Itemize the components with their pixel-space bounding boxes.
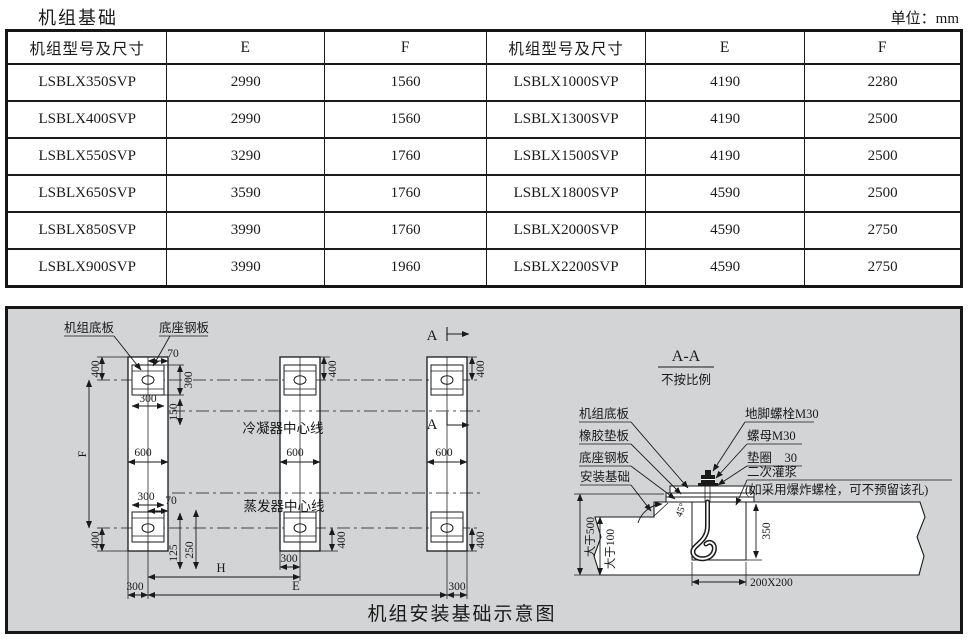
dim-gt500-label: 大于500 — [583, 517, 597, 557]
dim-150-label: 150 — [168, 403, 180, 421]
model-cell: LSBLX1300SVP — [487, 101, 646, 138]
dim-400-label: 400 — [475, 531, 487, 549]
table-row: LSBLX650SVP 3590 1760 LSBLX1800SVP 4590 … — [7, 175, 962, 212]
anchor-bolt-label: 地脚螺栓M30 — [745, 406, 819, 421]
unit-base-plate-label: 机组底板 — [64, 320, 115, 335]
table-row: LSBLX850SVP 3990 1760 LSBLX2000SVP 4590 … — [7, 212, 962, 249]
dim-f-cell: 2500 — [805, 101, 962, 138]
dim-f-cell: 2750 — [805, 212, 962, 249]
dim-pocket-label: 200X200 — [750, 577, 793, 589]
dim-f-cell: 1760 — [325, 138, 487, 175]
dim-e-cell: 4190 — [645, 138, 804, 175]
dim-70-label: 70 — [167, 348, 179, 360]
document-page: 机组基础 单位：mm 机组型号及尺寸 E F 机组型号及尺寸 E F LSBLX… — [0, 0, 971, 642]
dim-H-label: H — [216, 561, 225, 575]
dim-70-label: 70 — [165, 495, 177, 507]
rubber-pad-label: 橡胶垫板 — [579, 428, 630, 443]
model-cell: LSBLX650SVP — [7, 175, 167, 212]
dim-e-cell: 3590 — [167, 175, 325, 212]
dim-300-label: 300 — [126, 581, 144, 593]
base-steel-plate-label: 底座钢板 — [579, 450, 630, 465]
model-cell: LSBLX1800SVP — [487, 175, 646, 212]
col-header-e: E — [645, 31, 804, 65]
model-cell: LSBLX350SVP — [7, 64, 167, 101]
dim-600-label: 600 — [286, 447, 304, 459]
washer-label: 垫圈 30 — [747, 450, 797, 465]
dim-gt100-label: 大于100 — [603, 529, 617, 569]
dim-e-cell: 4590 — [645, 212, 804, 249]
dim-400-label: 400 — [90, 360, 102, 378]
dim-400-label: 400 — [90, 531, 102, 549]
dim-300-label: 300 — [448, 581, 466, 593]
col-header-e: E — [167, 31, 325, 65]
dim-e-cell: 4590 — [645, 249, 804, 287]
dim-300-label: 300 — [137, 491, 155, 503]
dim-e-cell: 4590 — [645, 175, 804, 212]
dim-250-label: 250 — [184, 541, 196, 559]
dim-e-cell: 2990 — [167, 64, 325, 101]
dim-f-cell: 1560 — [325, 64, 487, 101]
grout-label: 二次灌浆 — [747, 464, 798, 479]
table-row: LSBLX350SVP 2990 1560 LSBLX1000SVP 4190 … — [7, 64, 962, 101]
dim-125-label: 125 — [168, 544, 180, 562]
dim-f-cell: 1960 — [325, 249, 487, 287]
dim-e-cell: 2990 — [167, 101, 325, 138]
model-cell: LSBLX1500SVP — [487, 138, 646, 175]
table-row: LSBLX550SVP 3290 1760 LSBLX1500SVP 4190 … — [7, 138, 962, 175]
unit-label: 单位：mm — [891, 7, 959, 28]
dim-f-cell: 2500 — [805, 138, 962, 175]
table-row: LSBLX900SVP 3990 1960 LSBLX2200SVP 4590 … — [7, 249, 962, 287]
col-header-model: 机组型号及尺寸 — [487, 31, 646, 65]
grout-note-label: (如采用爆炸螺栓，可不预留该孔) — [745, 482, 928, 497]
dim-300-label: 300 — [183, 371, 195, 389]
plan-view: 机组底板 底座钢板 冷凝器中心线 蒸发器中心线 400 F 400 — [64, 320, 487, 599]
col-header-f: F — [325, 31, 487, 65]
base-steel-plate-label: 底座钢板 — [159, 320, 210, 335]
diagram-caption: 机组安装基础示意图 — [367, 603, 556, 625]
model-cell: LSBLX2200SVP — [487, 249, 646, 287]
dim-350-label: 350 — [761, 522, 773, 540]
dim-F-label: F — [77, 451, 89, 457]
section-marker-a-bottom: A — [427, 417, 438, 433]
col-header-model: 机组型号及尺寸 — [7, 31, 167, 65]
bolt-stud — [705, 470, 711, 475]
dim-f-cell: 1760 — [325, 212, 487, 249]
dim-400-label: 400 — [475, 360, 487, 378]
dim-600-label: 600 — [435, 447, 453, 459]
dim-e-cell: 3990 — [167, 249, 325, 287]
dim-f-cell: 1560 — [325, 101, 487, 138]
installation-diagram-panel: 机组底板 底座钢板 冷凝器中心线 蒸发器中心线 400 F 400 — [5, 306, 963, 634]
dim-e-cell: 3990 — [167, 212, 325, 249]
not-to-scale-label: 不按比例 — [661, 373, 711, 387]
dim-e-cell: 4190 — [645, 101, 804, 138]
page-title: 机组基础 — [38, 4, 118, 30]
section-title: A-A — [672, 348, 701, 365]
dim-300-label: 300 — [139, 393, 157, 405]
model-cell: LSBLX400SVP — [7, 101, 167, 138]
model-cell: LSBLX900SVP — [7, 249, 167, 287]
foundation-diagram: 机组底板 底座钢板 冷凝器中心线 蒸发器中心线 400 F 400 — [8, 309, 960, 631]
dim-f-cell: 2500 — [805, 175, 962, 212]
evaporator-centerline-label: 蒸发器中心线 — [244, 499, 325, 514]
dim-400-label: 400 — [327, 360, 339, 378]
dim-e-cell: 3290 — [167, 138, 325, 175]
dim-E-label: E — [292, 579, 300, 593]
table-row: LSBLX400SVP 2990 1560 LSBLX1300SVP 4190 … — [7, 101, 962, 138]
dim-600-label: 600 — [134, 447, 152, 459]
dim-400-label: 400 — [336, 531, 348, 549]
washer — [698, 483, 718, 487]
install-foundation-label: 安装基础 — [580, 469, 630, 484]
foundation-dimensions-table: 机组型号及尺寸 E F 机组型号及尺寸 E F LSBLX350SVP 2990… — [5, 29, 963, 288]
section-view: A-A 不按比例 45° — [574, 348, 952, 589]
condenser-centerline-label: 冷凝器中心线 — [243, 421, 324, 436]
dim-f-cell: 2280 — [805, 64, 962, 101]
model-cell: LSBLX1000SVP — [487, 64, 646, 101]
model-cell: LSBLX550SVP — [7, 138, 167, 175]
grout-pocket — [692, 502, 746, 560]
table-header-row: 机组型号及尺寸 E F 机组型号及尺寸 E F — [7, 31, 962, 65]
model-cell: LSBLX850SVP — [7, 212, 167, 249]
dim-f-cell: 2750 — [805, 249, 962, 287]
dim-f-cell: 1760 — [325, 175, 487, 212]
nut-label: 螺母M30 — [747, 429, 796, 443]
dim-300-label: 300 — [280, 553, 298, 565]
dim-e-cell: 4190 — [645, 64, 804, 101]
unit-base-plate-label: 机组底板 — [579, 406, 630, 421]
model-cell: LSBLX2000SVP — [487, 212, 646, 249]
section-marker-a-top: A — [427, 328, 438, 344]
col-header-f: F — [805, 31, 962, 65]
